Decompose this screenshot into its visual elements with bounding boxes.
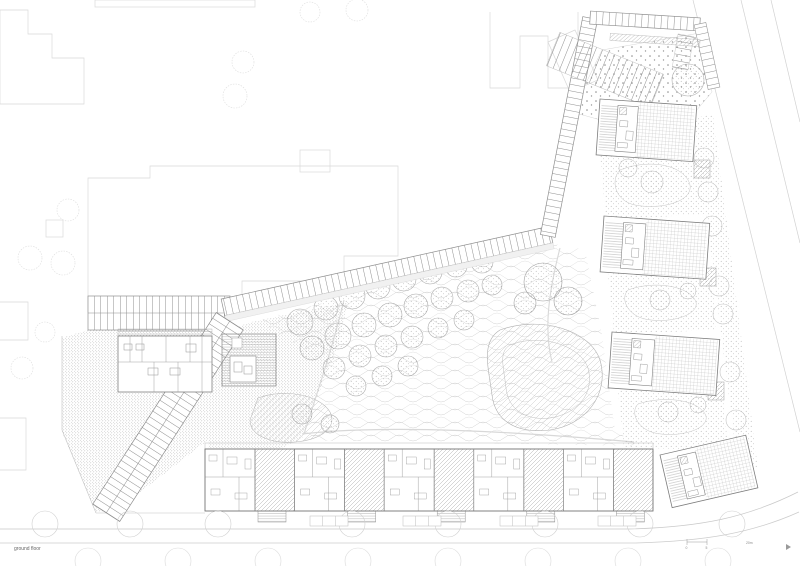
tree-icon [57, 199, 79, 221]
porch [258, 511, 286, 522]
tree-icon [404, 294, 428, 318]
unit-plan [205, 449, 255, 511]
unit-plan [384, 449, 434, 511]
tree-icon [232, 51, 254, 73]
tree-icon [287, 309, 313, 335]
tree-icon [75, 548, 101, 566]
tree-icon [346, 0, 368, 21]
porch [348, 511, 376, 522]
parking-bay [310, 516, 348, 526]
tree-icon [375, 335, 397, 357]
tree-icon [205, 511, 231, 537]
stair-roof [255, 449, 295, 511]
sheet-title: ground floor [14, 546, 41, 552]
row-houses [205, 443, 653, 522]
tree-icon [435, 548, 461, 566]
tree-icon [641, 171, 663, 193]
site-plan-drawing: ground floor 0 5 20m [0, 0, 800, 566]
apartment-building [596, 99, 697, 162]
tree-icon [457, 280, 479, 302]
entry-deck [610, 337, 632, 384]
tree-icon [680, 283, 696, 299]
roof-grid [642, 220, 707, 278]
parking-outline [598, 516, 636, 526]
corner-mark [786, 544, 791, 550]
tree-icon [345, 548, 371, 566]
tree-icon [554, 287, 582, 315]
tree-icon [619, 159, 637, 177]
tree-icon [346, 376, 366, 396]
scale-unit-label: 20m [746, 541, 753, 545]
tree-icon [292, 404, 312, 424]
tree-icon [378, 303, 402, 327]
road-edge [741, 0, 800, 243]
stair-roof [524, 449, 564, 511]
tree-icon [482, 275, 502, 295]
unit-plan [629, 338, 655, 385]
tree-icon [11, 357, 33, 379]
stair-core [625, 225, 632, 232]
apartment-building [608, 332, 720, 395]
apartment-building [600, 216, 710, 279]
tree-icon [431, 287, 453, 309]
tree-icon [323, 357, 345, 379]
tree-icon [719, 511, 745, 537]
unit-plan [563, 449, 613, 511]
tree-icon [615, 548, 641, 566]
tree-icon [525, 548, 551, 566]
tree-icon [321, 415, 339, 433]
bend-building [222, 334, 276, 386]
parking-outline [500, 516, 538, 526]
canopy-band [590, 11, 701, 31]
tree-icon [705, 548, 731, 566]
tree-icon [372, 366, 392, 386]
left-building [118, 329, 212, 392]
context-building-outline [95, 0, 255, 7]
unit-plan [295, 449, 345, 511]
parking-bay [500, 516, 538, 526]
stair-core [680, 456, 688, 464]
drawing-sheet: ground floor 0 5 20m [0, 0, 800, 566]
tree-icon [454, 310, 474, 330]
stair-core [633, 341, 640, 348]
tree-icon [325, 323, 351, 349]
tree-icon [51, 251, 75, 275]
tree-icon [18, 246, 42, 270]
hedge [694, 160, 710, 178]
tree-icon [690, 397, 706, 413]
tree-icon [255, 548, 281, 566]
stair-roof [613, 449, 653, 511]
context-building-outline [0, 418, 26, 470]
scale-tick-label: 5 [706, 546, 708, 550]
roof-grid [651, 336, 717, 394]
parking-outline [310, 516, 348, 526]
context-building-outline [300, 150, 330, 172]
stair-roof [434, 449, 474, 511]
context-building-outline [0, 302, 28, 340]
tree-icon [165, 548, 191, 566]
tree-icon [401, 326, 423, 348]
stair-core [619, 107, 626, 114]
tree-icon [117, 511, 143, 537]
tree-icon [650, 290, 670, 310]
context-building-outline [46, 220, 63, 237]
parking-bay [403, 516, 441, 526]
tree-icon [398, 356, 418, 376]
tree-icon [514, 292, 536, 314]
stair-roof [345, 449, 385, 511]
road-edge [771, 0, 800, 122]
tree-icon [35, 322, 55, 342]
tree-icon [428, 318, 448, 338]
tree-icon [300, 336, 324, 360]
entry-deck [602, 221, 623, 268]
scale-tick-label: 0 [686, 546, 688, 550]
unit-plan [621, 222, 646, 269]
tree-icon [352, 313, 376, 337]
tree-icon [300, 2, 320, 22]
unit-plan [474, 449, 524, 511]
tree-icon [349, 345, 371, 367]
parking-outline [403, 516, 441, 526]
tree-icon [223, 84, 247, 108]
parking-bay [598, 516, 636, 526]
context-building-outline [0, 10, 84, 104]
tree-icon [32, 511, 58, 537]
tree-icon [658, 402, 678, 422]
roof-grid [635, 103, 695, 161]
